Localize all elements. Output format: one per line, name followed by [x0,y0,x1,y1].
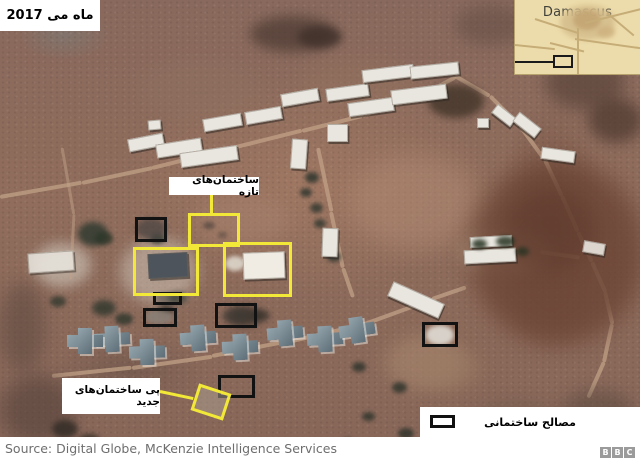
yellow-annotation-box [223,242,292,297]
inset-marker-box [553,55,573,68]
foundations-label: پی ساختمان‌های جدید [62,378,160,414]
materials-legend-box [430,415,455,428]
new-buildings-label-text: ساختمان‌های تازه [169,174,259,198]
inset-road [575,38,640,49]
yellow-annotation-box [133,247,199,296]
date-label: ماه می 2017 [0,0,100,31]
black-annotation-box [422,322,458,347]
inset-road [577,28,579,75]
annotated-satellite-graphic: ماه می 2017 ساختمان‌های تازه پی ساختمان‌… [0,0,640,459]
bbc-logo: B B C [600,447,635,458]
inset-city-area [597,26,615,38]
inset-locator-map: Damascus [514,0,640,75]
black-annotation-box [215,303,257,328]
source-text: Source: Digital Globe, McKenzie Intellig… [5,441,337,456]
black-annotation-box [135,217,167,242]
date-label-text: ماه می 2017 [6,8,93,23]
inset-road [515,44,555,50]
new-buildings-label: ساختمان‌های تازه [169,177,259,195]
inset-marker-line [515,61,553,63]
source-bar: Source: Digital Globe, McKenzie Intellig… [0,437,640,459]
yellow-connector-line [160,390,194,400]
bbc-logo-block-2: B [612,447,623,458]
materials-legend-text: مصالح ساختمانی [484,416,576,429]
foundations-label-text: پی ساختمان‌های جدید [62,384,160,408]
bbc-logo-block-1: B [600,447,611,458]
materials-legend: مصالح ساختمانی [420,407,640,437]
black-annotation-box [143,308,177,327]
bbc-logo-block-3: C [624,447,635,458]
